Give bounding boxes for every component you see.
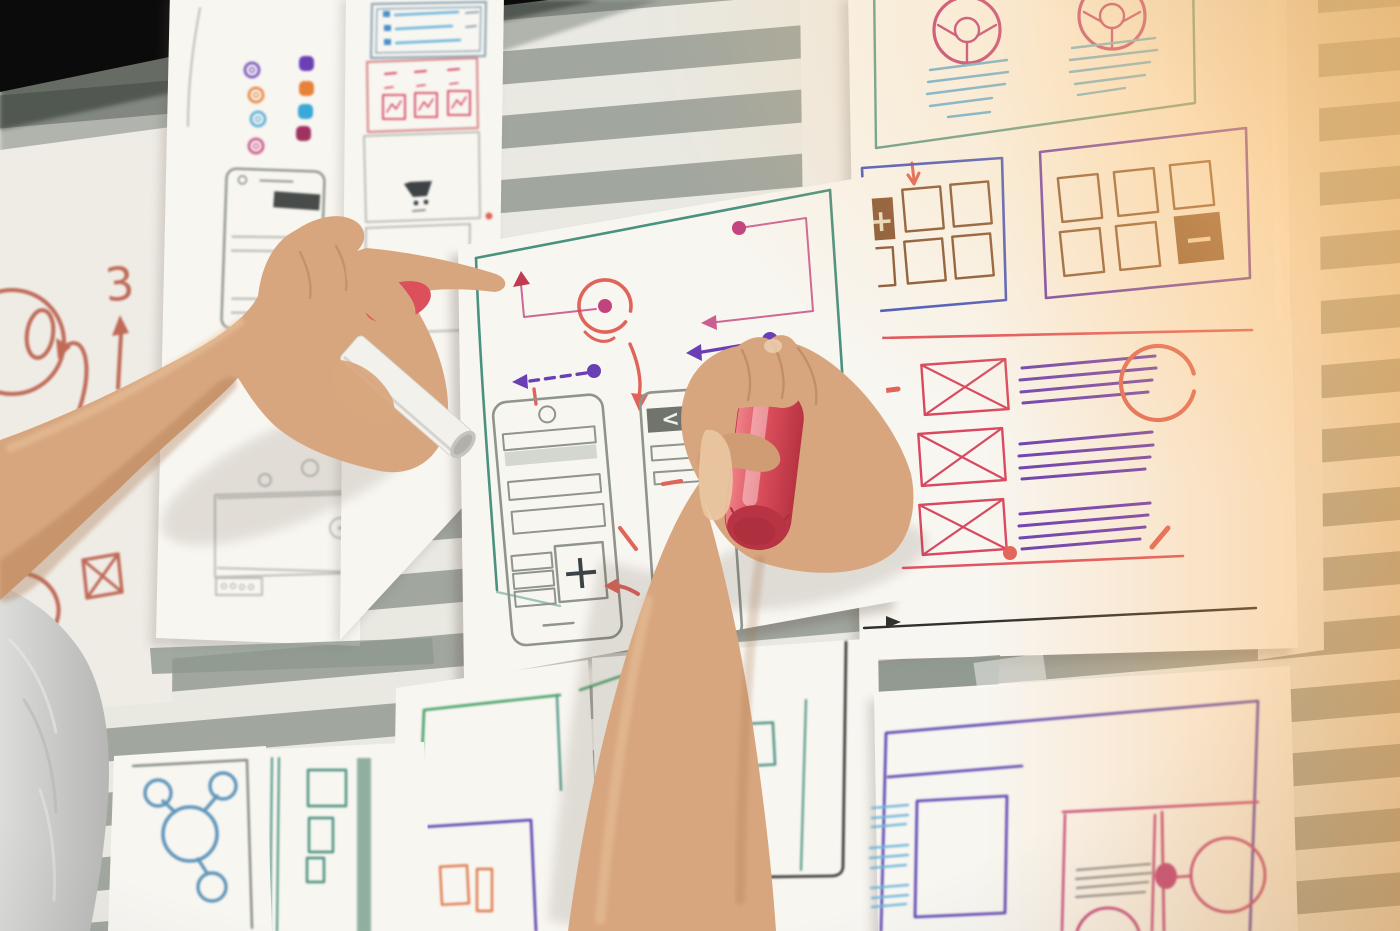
lighting-overlay — [0, 0, 1400, 931]
vignette — [0, 0, 1400, 931]
wireframing-photo: + − — [0, 0, 1400, 931]
photo-canvas: + − — [0, 0, 1400, 931]
